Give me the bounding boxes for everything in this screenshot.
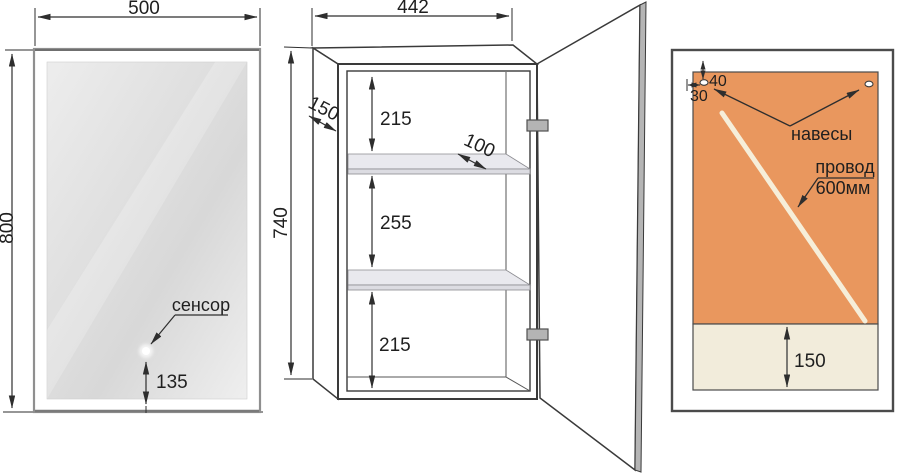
- drawing-canvas: 500 800 сенсор 135 442 740: [0, 0, 900, 474]
- sensor-dot: [142, 347, 150, 355]
- cabinet-top-face: [313, 45, 537, 64]
- hinge-bottom: [527, 329, 548, 340]
- extension-line: [284, 47, 312, 48]
- front-view: 500 800 сенсор 135: [0, 0, 263, 413]
- back-view: 40 30 навесы провод 600мм 150: [672, 50, 893, 411]
- shelf-2-front-edge: [348, 285, 530, 290]
- dimension-label-width: 500: [128, 0, 160, 19]
- dimension-label-hanger-side: 30: [690, 88, 708, 105]
- dimension-label-cabinet-width: 442: [397, 0, 429, 18]
- shelf-2-top: [348, 270, 530, 285]
- technical-drawing-mirror-cabinet: 500 800 сенсор 135 442 740: [0, 0, 900, 474]
- wire-length-label: 600мм: [816, 178, 871, 198]
- dimension-label-section-3: 215: [379, 335, 411, 356]
- dimension-label-section-2: 255: [380, 213, 412, 234]
- cabinet-view: 442 740 150 100 215 255: [271, 0, 646, 472]
- cabinet-door-panel: [537, 5, 640, 470]
- hanger-right: [865, 81, 873, 87]
- shelf-1-front-edge: [348, 169, 530, 174]
- cabinet-opening: [347, 71, 530, 391]
- back-panel-bottom-section: [693, 324, 878, 390]
- dimension-label-hanger-top: 40: [709, 73, 727, 90]
- dimension-label-bottom-section: 150: [794, 351, 826, 372]
- shelf-1-top: [348, 154, 530, 169]
- wire-callout-label: провод: [815, 157, 875, 177]
- back-panel-orange: [693, 72, 878, 324]
- sensor-callout-label: сенсор: [172, 295, 230, 315]
- hinge-top: [527, 120, 548, 131]
- hangers-callout-label: навесы: [791, 124, 852, 144]
- dimension-label-sensor-offset: 135: [156, 372, 188, 393]
- hanger-left: [700, 80, 708, 86]
- dimension-label-cabinet-height: 740: [271, 207, 292, 239]
- dimension-label-section-1: 215: [380, 109, 412, 130]
- dimension-label-height: 800: [0, 212, 18, 244]
